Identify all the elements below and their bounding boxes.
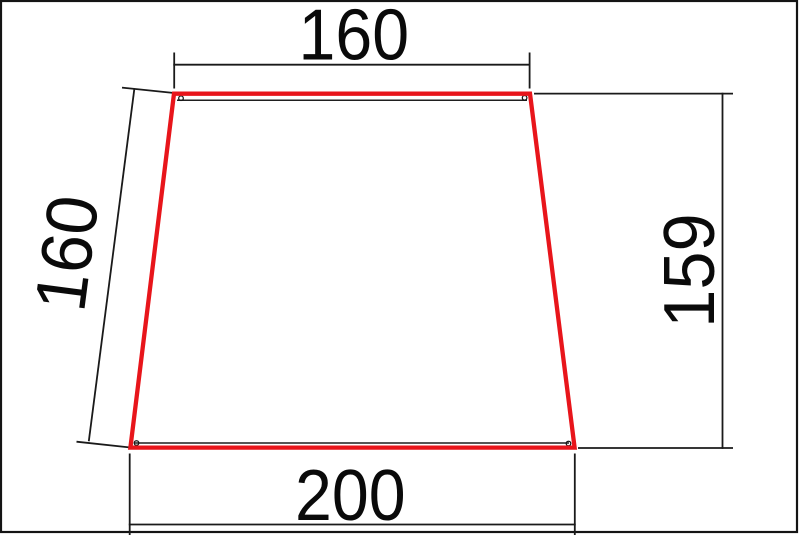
svg-text:160: 160 — [299, 0, 410, 76]
svg-text:159: 159 — [650, 213, 730, 328]
svg-text:200: 200 — [295, 456, 406, 536]
svg-text:160: 160 — [20, 191, 114, 315]
